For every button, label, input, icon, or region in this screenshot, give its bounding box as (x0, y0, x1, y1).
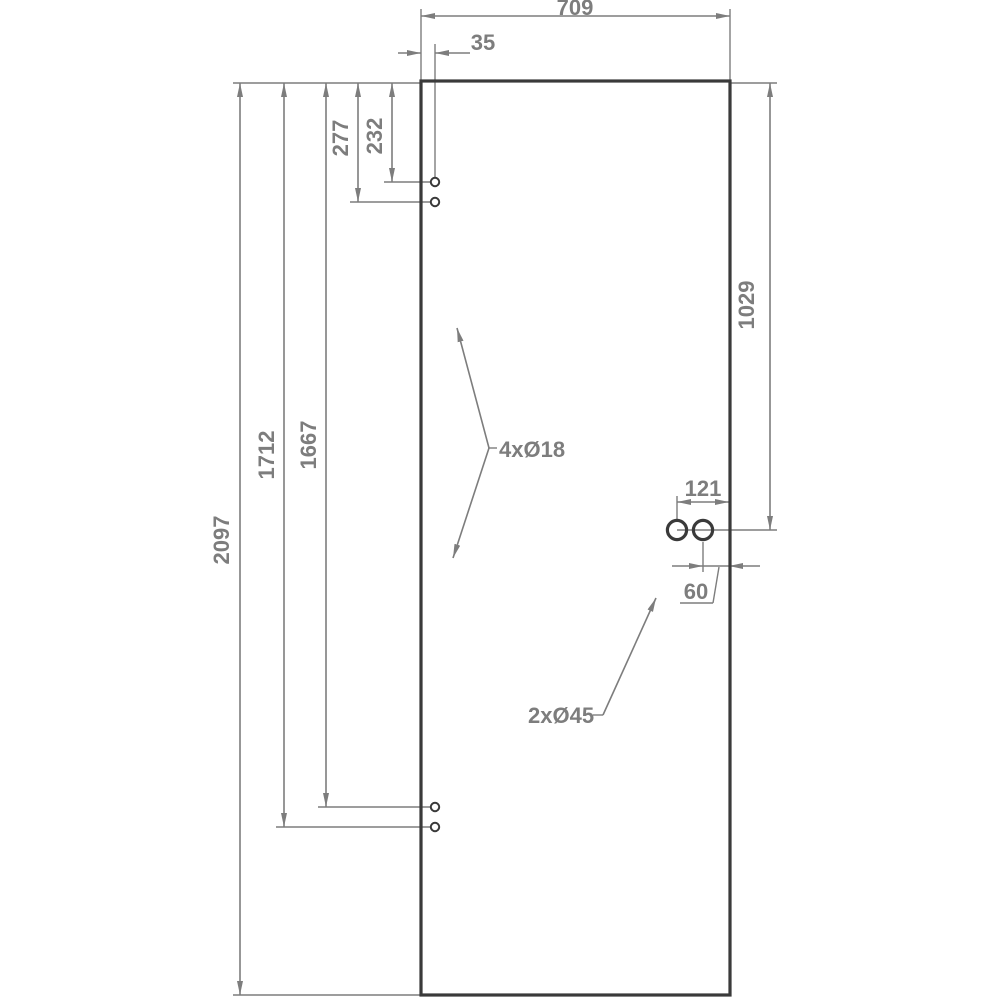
dimension-text-121: 121 (685, 476, 722, 501)
dimension-overall-height: 2097 (209, 83, 240, 995)
dimension-text-overall-height: 2097 (209, 516, 234, 565)
dimension-handle-height-1029: 1029 (677, 83, 777, 530)
dimension-text-1667: 1667 (296, 421, 321, 470)
small-hole-top-2 (431, 198, 439, 206)
dimension-text-1029: 1029 (734, 281, 759, 330)
dimension-hole-offset-35: 35 (398, 30, 495, 178)
text-leader (713, 567, 719, 603)
dimension-bottom-hole2-1712: 1712 (254, 83, 430, 827)
leader-arrow-up (457, 328, 489, 448)
dimension-bottom-hole1-1667: 1667 (296, 83, 430, 807)
dimension-text-hole-offset: 35 (471, 30, 495, 55)
dimension-text-1712: 1712 (254, 431, 279, 480)
leader-arrow (603, 598, 656, 715)
small-hole-top-1 (431, 178, 439, 186)
dimension-handle-60: 60 (672, 542, 760, 604)
small-hole-bottom-2 (431, 823, 439, 831)
dimension-text-232: 232 (362, 118, 387, 155)
leader-arrow-down (453, 448, 489, 558)
small-hole-bottom-1 (431, 803, 439, 811)
dimension-text-277: 277 (328, 120, 353, 157)
label-large-holes: 2xØ45 (528, 598, 656, 728)
drawing-canvas: 709 35 232 277 1667 1712 2097 (0, 0, 1000, 1000)
label-small-holes: 4xØ18 (453, 328, 565, 558)
label-text-large-holes: 2xØ45 (528, 703, 594, 728)
dimension-text-overall-width: 709 (557, 0, 594, 20)
dimension-handle-121: 121 (677, 476, 729, 520)
dimension-overall-width: 709 (421, 0, 730, 80)
label-text-small-holes: 4xØ18 (499, 437, 565, 462)
dimension-text-60: 60 (684, 579, 708, 604)
